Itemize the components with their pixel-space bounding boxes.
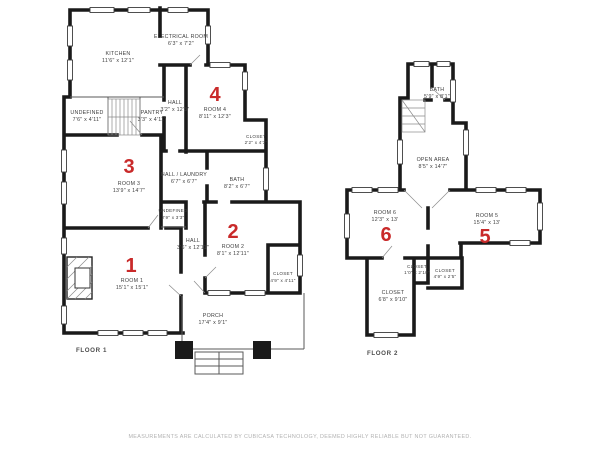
room-label-room6: ROOM 6 [374, 210, 396, 216]
room-dims-closet-small: 1'0" x 2'10" [404, 270, 430, 275]
window-marker [437, 62, 450, 67]
window-marker [168, 8, 188, 13]
room-label-bath1: BATH [230, 177, 245, 183]
room-label-hall-laundry: HALL / LAUNDRY [161, 172, 207, 178]
room-dims-room4: 8'11" x 12'3" [199, 114, 231, 120]
room-dims-closet-upper: 2'2" x 4'3" [245, 140, 268, 145]
window-marker [510, 241, 530, 246]
staircase-floor1 [108, 99, 140, 135]
room-dims-open-area: 8'5" x 14'7" [418, 164, 447, 170]
room-dims-closet-bottom: 6'8" x 9'10" [378, 297, 407, 303]
window-marker [62, 238, 67, 254]
room-number-5: 5 [479, 226, 490, 248]
window-marker [90, 8, 114, 13]
floor2-windows [345, 62, 543, 338]
window-marker [374, 333, 398, 338]
room-label-open-area: OPEN AREA [417, 157, 450, 163]
room-dims-closet-right: 4'9" x 2'5" [434, 274, 457, 279]
room-label-kitchen: KITCHEN [106, 51, 131, 57]
room-dims-room1: 15'1" x 15'1" [116, 285, 148, 291]
room-label-hall-upper: HALL [168, 100, 182, 106]
room-label-bath2: BATH [430, 87, 445, 93]
room-dims-electrical: 6'3" x 7'2" [168, 41, 194, 47]
room-label-closet-bottom: CLOSET [382, 290, 405, 296]
room-dims-hall-upper: 3'2" x 12'3" [160, 107, 189, 113]
floor2-plan: BATH 5'9" x 8'1" OPEN AREA 8'5" x 14'7" … [345, 62, 543, 358]
floor2-walls [347, 64, 540, 335]
room-dims-room6: 12'3" x 13' [372, 217, 399, 223]
room-dims-kitchen: 11'6" x 12'1" [102, 58, 134, 64]
room-label-room5: ROOM 5 [476, 213, 498, 219]
window-marker [208, 291, 230, 296]
window-marker [62, 150, 67, 172]
room-dims-hall-laundry: 6'7" x 6'7" [171, 179, 197, 185]
window-marker [148, 331, 167, 336]
room-label-room2: ROOM 2 [222, 244, 244, 250]
room-label-undefined-small: UNDEFINED [158, 208, 187, 213]
window-marker [378, 188, 398, 193]
room-dims-pantry: 3'3" x 4'11" [138, 117, 167, 123]
window-marker [245, 291, 265, 296]
window-marker [62, 182, 67, 204]
room-dims-room3: 13'9" x 14'7" [113, 188, 145, 194]
room-number-6: 6 [380, 224, 391, 246]
floorplan-page: KITCHEN 11'6" x 12'1" ELECTRICAL ROOM 6'… [0, 0, 600, 450]
room-number-1: 1 [125, 255, 136, 277]
room-label-electrical: ELECTRICAL ROOM [154, 34, 208, 40]
room-number-3: 3 [123, 156, 134, 178]
room-dims-closet-lower: 4'9" x 4'11" [270, 278, 295, 283]
window-marker [414, 62, 429, 67]
window-marker [506, 188, 526, 193]
porch-structure [175, 293, 304, 374]
window-marker [98, 331, 118, 336]
fireplace [67, 257, 92, 299]
room-label-closet-small: CLOSET [407, 264, 427, 269]
floor2-title: FLOOR 2 [367, 350, 398, 357]
room-dims-undefined-upper: 7'6" x 4'11" [73, 117, 102, 123]
staircase-floor2 [402, 100, 425, 132]
porch-pillar [253, 341, 271, 359]
footer-disclaimer: MEASUREMENTS ARE CALCULATED BY CUBICASA … [128, 434, 471, 440]
floor1-labels: KITCHEN 11'6" x 12'1" ELECTRICAL ROOM 6'… [70, 34, 295, 354]
window-marker [352, 188, 372, 193]
room-label-hall-lower: HALL [186, 238, 200, 244]
floorplan-canvas: KITCHEN 11'6" x 12'1" ELECTRICAL ROOM 6'… [0, 0, 600, 450]
floor1-plan: KITCHEN 11'6" x 12'1" ELECTRICAL ROOM 6'… [62, 8, 305, 375]
fireplace-firebox [75, 268, 90, 288]
room-label-closet-right: CLOSET [435, 268, 455, 273]
room-label-closet-lower: CLOSET [273, 271, 293, 276]
window-marker [345, 214, 350, 238]
door-leaf [382, 90, 450, 258]
room-label-room4: ROOM 4 [204, 107, 226, 113]
window-marker [398, 140, 403, 164]
porch-pillar [175, 341, 193, 359]
room-label-porch: PORCH [203, 313, 223, 319]
porch-step-lines [195, 352, 243, 374]
stair-treads [402, 100, 425, 132]
floor1-title: FLOOR 1 [76, 347, 107, 354]
floor2-labels: BATH 5'9" x 8'1" OPEN AREA 8'5" x 14'7" … [367, 87, 500, 357]
room-number-4: 4 [209, 84, 221, 106]
room-dims-hall-lower: 3'6" x 12'11" [177, 245, 209, 251]
window-marker [298, 255, 303, 276]
room-dims-bath2: 5'9" x 8'1" [424, 94, 450, 100]
room-label-closet-upper: CLOSET [246, 134, 266, 139]
room-number-2: 2 [227, 221, 238, 243]
room-label-room1: ROOM 1 [121, 278, 143, 284]
window-marker [464, 130, 469, 155]
window-marker [62, 306, 67, 324]
room-dims-room2: 8'1" x 12'11" [217, 251, 249, 257]
room-dims-porch: 17'4" x 9'1" [198, 320, 227, 326]
room-dims-bath1: 8'2" x 6'7" [224, 184, 250, 190]
window-marker [68, 60, 73, 80]
stair-treads [108, 99, 140, 135]
window-marker [451, 80, 456, 102]
window-marker [243, 72, 248, 90]
room-label-room3: ROOM 3 [118, 181, 140, 187]
window-marker [128, 8, 150, 13]
window-marker [123, 331, 143, 336]
window-marker [68, 26, 73, 46]
room-dims-undefined-small: 2'9" x 3'3" [162, 215, 185, 220]
room-label-undefined-upper: UNDEFINED [70, 110, 103, 116]
window-marker [264, 168, 269, 190]
window-marker [476, 188, 496, 193]
window-marker [538, 203, 543, 230]
window-marker [210, 63, 230, 68]
